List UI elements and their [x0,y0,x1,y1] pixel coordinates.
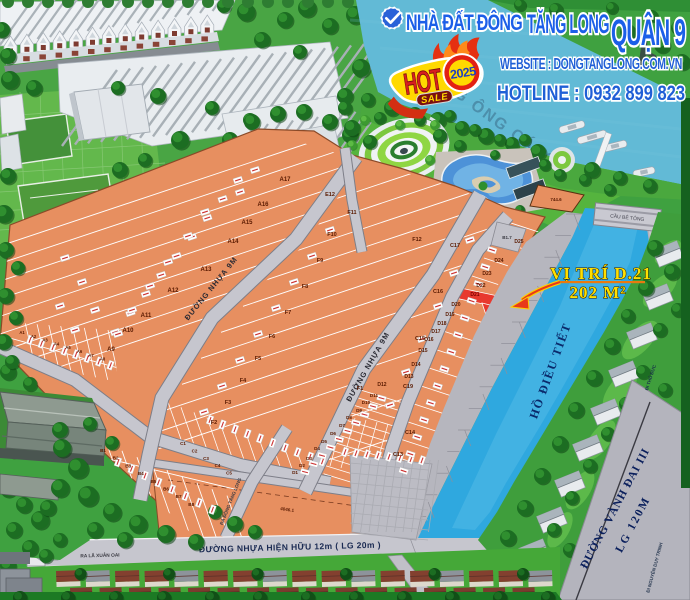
svg-text:C13: C13 [393,452,403,458]
svg-text:F4: F4 [240,378,247,384]
svg-text:D12: D12 [377,382,386,388]
svg-text:A7: A7 [88,353,94,358]
svg-text:D8: D8 [346,415,352,420]
svg-text:C5: C5 [226,471,232,476]
svg-text:B6: B6 [163,487,169,492]
svg-text:C16: C16 [433,289,443,295]
svg-text:D14: D14 [411,362,420,368]
svg-text:D1: D1 [292,470,298,475]
svg-text:D21: D21 [470,292,479,298]
svg-text:F6: F6 [269,334,275,340]
svg-text:C17: C17 [450,243,460,249]
svg-text:B4: B4 [138,471,144,476]
svg-text:D15: D15 [418,348,427,354]
svg-text:C14: C14 [405,430,416,436]
svg-text:A10: A10 [122,328,134,334]
svg-text:C2: C2 [192,448,198,453]
svg-text:F9: F9 [317,258,323,264]
svg-text:D2: D2 [299,463,305,468]
svg-text:A5: A5 [65,345,71,350]
svg-text:D5: D5 [321,439,327,444]
svg-text:C19: C19 [403,384,413,390]
svg-text:D23: D23 [482,271,491,277]
svg-text:F3: F3 [225,400,231,406]
svg-text:D18: D18 [437,321,446,327]
svg-text:B5: B5 [150,479,156,484]
svg-text:A2: A2 [31,334,37,339]
svg-text:A16: A16 [257,202,269,208]
svg-text:NHÀ ĐẤT ĐÔNG: NHÀ ĐẤT ĐÔNG [406,10,522,35]
svg-text:A17: A17 [279,177,291,183]
svg-text:A9: A9 [107,347,115,353]
svg-text:202 M²: 202 M² [570,283,627,302]
svg-text:HOTLINE : 0932 899 823: HOTLINE : 0932 899 823 [497,82,685,105]
svg-text:B1: B1 [100,448,106,453]
svg-text:D3: D3 [306,456,312,461]
svg-text:F12: F12 [412,237,421,243]
svg-text:744.6: 744.6 [550,197,562,202]
svg-text:D22: D22 [476,283,485,289]
svg-text:D25: D25 [514,239,523,245]
svg-text:D9: D9 [356,408,362,413]
svg-text:A12: A12 [167,288,179,294]
svg-text:D6: D6 [330,431,336,436]
svg-text:F11: F11 [347,210,356,216]
svg-text:B3: B3 [125,463,131,468]
svg-text:A4: A4 [54,341,60,346]
svg-text:F5: F5 [255,356,261,362]
svg-text:E12: E12 [325,192,335,198]
svg-text:D11: D11 [370,393,379,398]
svg-text:A1: A1 [19,330,25,335]
svg-text:C4: C4 [215,463,221,468]
svg-text:TĂNG LONG: TĂNG LONG [527,8,609,39]
svg-text:VỊ TRÍ D.21: VỊ TRÍ D.21 [550,264,652,283]
svg-text:D16: D16 [424,337,433,343]
svg-text:B8: B8 [188,502,194,507]
svg-text:A6: A6 [77,349,83,354]
svg-text:A14: A14 [227,239,239,245]
svg-text:A11: A11 [141,313,152,319]
svg-text:C1: C1 [180,441,186,446]
svg-text:A3: A3 [42,338,48,343]
svg-text:D7: D7 [339,423,345,428]
svg-text:B7: B7 [176,494,182,499]
svg-text:F2: F2 [211,420,217,426]
svg-text:QUẬN 9: QUẬN 9 [611,11,686,53]
svg-text:F1: F1 [357,386,363,392]
svg-text:A15: A15 [241,220,253,226]
svg-text:WEBSITE : DONGTANGLONG.COM.VN: WEBSITE : DONGTANGLONG.COM.VN [500,56,682,73]
svg-text:B1.7: B1.7 [502,235,512,240]
svg-text:F8: F8 [302,284,308,290]
svg-text:D19: D19 [445,312,454,318]
svg-text:D13: D13 [404,374,413,380]
svg-text:A8: A8 [100,357,106,362]
svg-text:B2: B2 [113,456,119,461]
svg-text:D17: D17 [431,329,440,335]
svg-text:D4: D4 [314,446,320,451]
svg-text:D10: D10 [362,400,371,405]
svg-text:D24: D24 [494,258,503,264]
svg-text:D20: D20 [451,302,460,308]
svg-text:C3: C3 [203,456,209,461]
svg-text:F10: F10 [327,232,336,238]
svg-text:F7: F7 [285,310,291,316]
svg-text:A13: A13 [200,267,212,273]
